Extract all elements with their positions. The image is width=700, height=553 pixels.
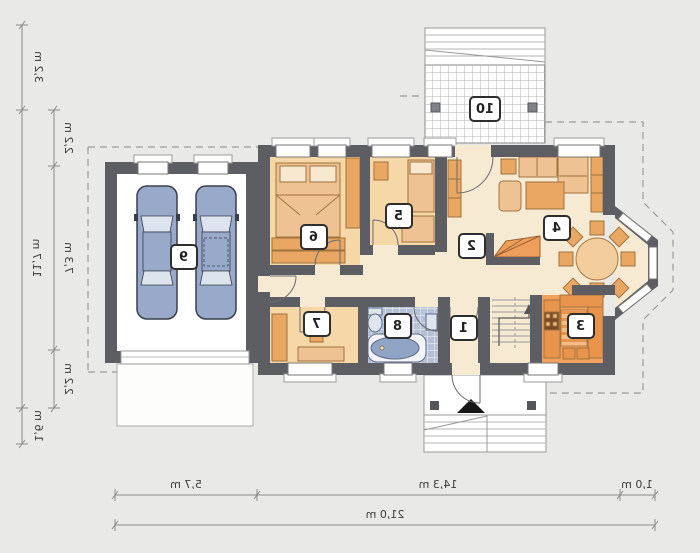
room-number-text: 7 bbox=[312, 317, 321, 332]
room-label-8: 8 bbox=[384, 313, 412, 339]
tv-sideboard bbox=[591, 157, 603, 212]
garage-window bbox=[138, 162, 168, 174]
entry-porch bbox=[424, 375, 546, 452]
room-number-text: 1 bbox=[459, 321, 468, 336]
dim-bottom-right: 1,0 m bbox=[607, 477, 667, 493]
bay-window bbox=[649, 247, 657, 279]
room-label-3: 3 bbox=[567, 313, 595, 339]
car-2 bbox=[193, 186, 239, 319]
closet bbox=[272, 251, 345, 263]
room-label-4: 4 bbox=[543, 215, 571, 241]
porch-post bbox=[527, 401, 536, 410]
room-number-text: 8 bbox=[393, 319, 402, 334]
room-number-text: 4 bbox=[552, 221, 561, 236]
window bbox=[528, 363, 558, 375]
room-number-text: 10 bbox=[476, 102, 494, 117]
window bbox=[384, 363, 412, 375]
terrace-post bbox=[431, 103, 440, 112]
window bbox=[558, 145, 600, 157]
terrace-door-opening bbox=[455, 145, 491, 157]
room-number-text: 3 bbox=[576, 319, 585, 334]
terrace bbox=[425, 28, 545, 143]
dim-left-inner-top: 2,2 m bbox=[60, 108, 76, 168]
coffee-table bbox=[526, 182, 564, 209]
dim-bottom-total: 21,0 m bbox=[355, 507, 415, 523]
window bbox=[276, 145, 310, 157]
window bbox=[372, 145, 410, 157]
stool bbox=[563, 348, 575, 359]
toilet bbox=[368, 308, 382, 332]
window bbox=[288, 363, 332, 375]
armchair bbox=[499, 181, 521, 211]
floor-plan-drawing bbox=[0, 0, 700, 553]
wardrobe bbox=[272, 314, 287, 361]
side-table bbox=[501, 159, 516, 174]
driveway bbox=[117, 364, 253, 426]
garage-window bbox=[198, 162, 228, 174]
desk bbox=[298, 347, 344, 361]
room-label-7: 7 bbox=[303, 311, 331, 337]
room-label-10: 10 bbox=[469, 96, 501, 122]
room-number-text: 2 bbox=[467, 239, 476, 254]
room-number-text: 6 bbox=[309, 230, 318, 245]
terrace-post bbox=[528, 103, 537, 112]
room-label-2: 2 bbox=[458, 233, 486, 259]
washbasin bbox=[426, 314, 437, 330]
room-label-6: 6 bbox=[300, 224, 328, 250]
room-label-5: 5 bbox=[385, 203, 413, 229]
dim-bottom-left: 5,7 m bbox=[156, 477, 216, 493]
dim-left-outer-mid: 11,7 m bbox=[28, 228, 44, 288]
room-label-9: 9 bbox=[170, 244, 198, 270]
window bbox=[428, 145, 452, 157]
dim-left-inner-bottom: 2,2 m bbox=[60, 349, 76, 409]
dim-bottom-mid: 14,3 m bbox=[408, 477, 468, 493]
room-number-text: 9 bbox=[179, 250, 188, 265]
dim-left-inner-mid: 7,3 m bbox=[60, 228, 76, 288]
room-label-1: 1 bbox=[450, 315, 478, 341]
porch-post bbox=[430, 401, 439, 410]
dim-left-outer-top: 3,2 m bbox=[30, 37, 46, 97]
desk bbox=[374, 162, 388, 180]
hall-wardrobe bbox=[448, 160, 461, 217]
floor-plan-canvas: 3,2 m 11,7 m 1,6 m 2,2 m 7,3 m 2,2 m 5,7… bbox=[0, 0, 700, 553]
room-number-text: 5 bbox=[394, 209, 403, 224]
dim-left-outer-bottom: 1,6 m bbox=[30, 396, 46, 456]
wardrobe bbox=[346, 158, 360, 228]
front-door-opening bbox=[452, 363, 480, 375]
window bbox=[318, 145, 346, 157]
stool bbox=[577, 348, 589, 359]
garage-door-opening bbox=[258, 276, 270, 292]
